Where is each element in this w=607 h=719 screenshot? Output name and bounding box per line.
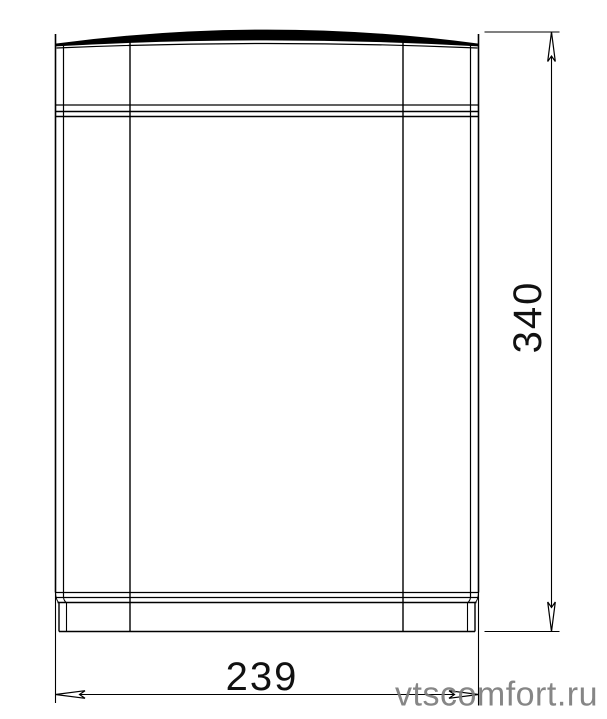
technical-drawing: 340 239 vtscomfort.ru (0, 0, 607, 719)
dimension-height-value: 340 (506, 281, 550, 354)
watermark-text: vtscomfort.ru (395, 676, 598, 714)
top-cap-inner-arc (57, 44, 478, 49)
drawing-canvas: 340 239 vtscomfort.ru (0, 0, 607, 719)
object-front-view (56, 30, 479, 632)
dimension-width-value: 239 (226, 655, 299, 699)
